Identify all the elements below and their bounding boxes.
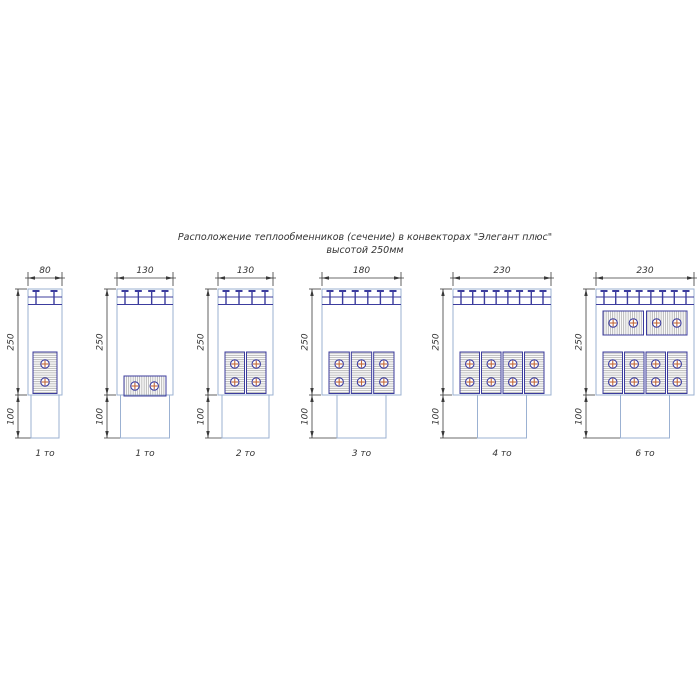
upper-height-dimension-label: 250 xyxy=(96,333,106,350)
air-duct xyxy=(121,395,170,438)
convector-diagram-4: 1802501003 то xyxy=(301,266,405,459)
air-duct xyxy=(337,395,386,438)
upper-height-dimension-label: 250 xyxy=(301,333,311,350)
width-dimension-label: 180 xyxy=(353,266,370,276)
lower-height-dimension-label: 100 xyxy=(432,408,442,425)
upper-height-dimension-label: 250 xyxy=(7,333,17,350)
heat-exchanger-blocks xyxy=(124,376,166,396)
width-dimension-label: 130 xyxy=(237,266,254,276)
convector-diagram-2: 1302501001 то xyxy=(96,266,177,459)
air-duct xyxy=(478,395,527,438)
heat-exchanger-blocks xyxy=(33,352,57,394)
air-duct xyxy=(621,395,670,438)
heat-exchanger-blocks xyxy=(329,352,394,394)
exchanger-count-label: 4 то xyxy=(492,449,512,459)
exchanger-count-label: 1 то xyxy=(35,449,55,459)
convector-diagram-6: 2302501006 то xyxy=(575,266,698,459)
convector-diagram-3: 1302501002 то xyxy=(197,266,277,459)
exchanger-count-label: 2 то xyxy=(236,449,256,459)
convector-diagram-5: 2302501004 то xyxy=(432,266,555,459)
upper-height-dimension-label: 250 xyxy=(197,333,207,350)
technical-drawing: 802501001 то1302501001 то1302501002 то18… xyxy=(0,0,700,700)
upper-height-dimension-label: 250 xyxy=(432,333,442,350)
exchanger-count-label: 1 то xyxy=(135,449,155,459)
air-duct xyxy=(31,395,59,438)
air-duct xyxy=(222,395,269,438)
lower-height-dimension-label: 100 xyxy=(197,408,207,425)
width-dimension-label: 230 xyxy=(493,266,510,276)
lower-height-dimension-label: 100 xyxy=(96,408,106,425)
width-dimension-label: 230 xyxy=(636,266,653,276)
exchanger-count-label: 6 то xyxy=(635,449,655,459)
lower-height-dimension-label: 100 xyxy=(7,408,17,425)
exchanger-count-label: 3 то xyxy=(352,449,372,459)
width-dimension-label: 130 xyxy=(136,266,153,276)
convector-diagram-1: 802501001 то xyxy=(7,266,66,459)
lower-height-dimension-label: 100 xyxy=(575,408,585,425)
drawing-canvas: Расположение теплообменников (сечение) в… xyxy=(0,0,700,700)
upper-height-dimension-label: 250 xyxy=(575,333,585,350)
lower-height-dimension-label: 100 xyxy=(301,408,311,425)
width-dimension-label: 80 xyxy=(39,266,51,276)
